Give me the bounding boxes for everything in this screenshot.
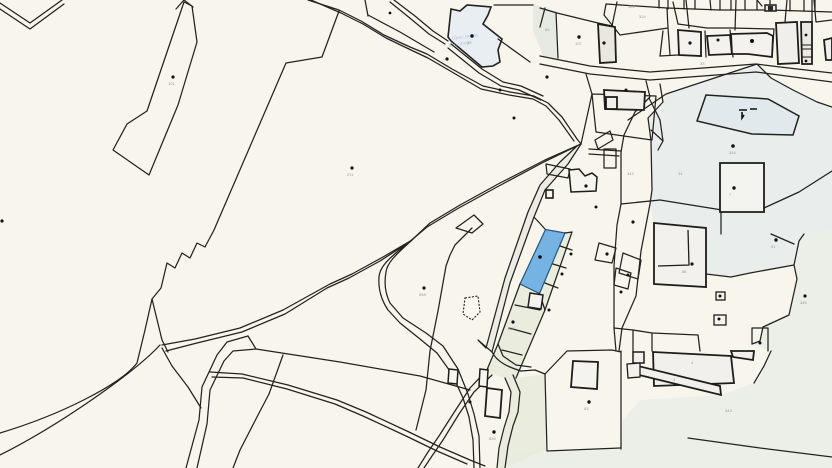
svg-text:88: 88 (682, 269, 687, 274)
svg-text:343: 343 (627, 171, 634, 176)
svg-text:859: 859 (489, 436, 496, 441)
svg-text:857: 857 (508, 326, 515, 331)
svg-text:34: 34 (678, 171, 683, 176)
svg-text:91: 91 (771, 244, 776, 249)
svg-text:322: 322 (628, 4, 635, 9)
svg-text:101: 101 (168, 81, 175, 86)
svg-text:65: 65 (545, 27, 550, 32)
svg-text:343: 343 (725, 408, 732, 413)
svg-text:35: 35 (467, 40, 472, 45)
svg-text:858: 858 (419, 292, 426, 297)
svg-text:53: 53 (584, 406, 589, 411)
svg-text:211: 211 (347, 172, 354, 177)
svg-text:107: 107 (575, 41, 582, 46)
svg-text:344: 344 (729, 150, 736, 155)
svg-text:324: 324 (639, 14, 646, 19)
svg-text:345: 345 (800, 300, 807, 305)
svg-text:33: 33 (700, 61, 705, 66)
